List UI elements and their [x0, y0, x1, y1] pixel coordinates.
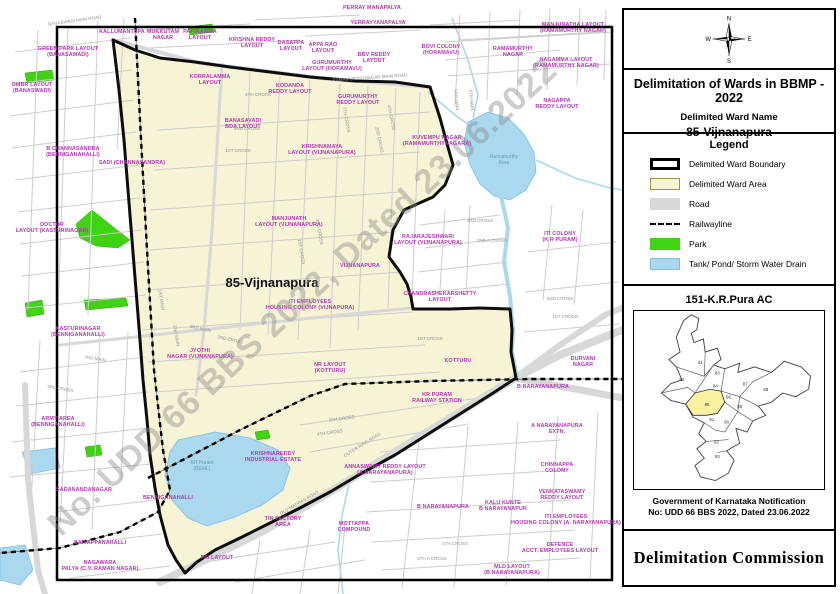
legend-item: Tank/ Pond/ Storm Water Drain	[650, 257, 834, 271]
place-label: NR LAYOUT(KOTTURU)	[314, 362, 346, 374]
legend-item: Delimited Ward Area	[650, 177, 834, 191]
legend-swatch-road	[650, 198, 680, 210]
place-label: B CHANNASANDRA(BENNIGANAHALLI)	[46, 146, 100, 158]
place-label: SADI (CHANNASANDRA)	[99, 160, 165, 166]
place-label: OMBR LAYOUT(BANASWADI)	[12, 82, 53, 94]
title-box: Delimitation of Wards in BBMP - 2022 Del…	[624, 70, 834, 134]
legend-box: Legend Delimited Ward BoundaryDelimited …	[624, 134, 834, 286]
compass-box: N S W E	[624, 10, 834, 70]
street-label: 2ND A CROSS	[477, 238, 507, 243]
legend-title: Legend	[624, 139, 834, 151]
compass-e: E	[748, 37, 752, 43]
street-label: 4TH CROSS	[245, 92, 271, 97]
place-label: BAIYAPPANAHALLI	[74, 540, 127, 546]
legend-item: Delimited Ward Boundary	[650, 157, 834, 171]
compass-s: S	[727, 59, 731, 65]
inset-map: 81828384878886858991909293	[634, 311, 823, 488]
place-label: KRISHNAREDDYINDUSTRIAL ESTATE	[245, 451, 302, 463]
place-label: KASTURINAGAR(BENNIGANAHALLI)	[51, 326, 105, 338]
legend-item-label: Delimited Ward Area	[689, 179, 767, 189]
street-label: 5TH A CROSS	[417, 556, 447, 561]
inset-ward-number: 81	[698, 360, 703, 365]
place-label: APPA RAOLAYOUT	[309, 42, 338, 54]
legend-items: Delimited Ward BoundaryDelimited Ward Ar…	[624, 157, 834, 271]
info-panel: N S W E Delimitation of Wards in BBMP - …	[622, 8, 836, 587]
inset-ward-number: 87	[743, 382, 748, 387]
legend-item: Road	[650, 197, 834, 211]
place-label: PAI LAYOUT	[201, 555, 234, 561]
inset-ward-number: 89	[737, 404, 742, 409]
place-label: GURUMURTHYREDDY LAYOUT	[336, 94, 380, 106]
notification-line2: No: UDD 66 BBS 2022, Dated 23.06.2022	[648, 507, 810, 518]
inset-ward-number: 83	[715, 370, 720, 375]
street-label: 2ND CROSS	[234, 126, 260, 131]
place-label: KALU KUNTEB NARAYANAPUR	[479, 500, 527, 512]
ward-map-canvas: KALLUMANTAPAMUKKUTAMNAGARPAPIRAMMALAYOUT…	[0, 0, 622, 594]
place-label: MANJUNATHA LAYOUT(RAMAMURTHY NAGAR)	[540, 22, 606, 34]
inset-ward-number: 92	[714, 439, 719, 444]
ward-name-label: Delimited Ward Name	[624, 112, 834, 123]
place-label: RAJARAJESHWARILAYOUT (VIJNANAPURA)	[394, 234, 462, 246]
place-label: VENKATASWAMYREDDY LAYOUT	[539, 489, 586, 501]
inset-ward-number: 82	[679, 377, 684, 382]
place-label: ITI COLONY(K R PURAM)	[542, 231, 577, 243]
compass-n: N	[727, 16, 731, 22]
street-label: 1ST CROSS	[552, 314, 577, 319]
inset-map-frame: 81828384878886858991909293	[633, 310, 825, 490]
water-label: KR Puram(BEML)	[190, 460, 213, 472]
inset-ward-number: 91	[709, 417, 714, 422]
commission-title: Delimitation Commission	[634, 548, 825, 568]
park	[85, 445, 102, 457]
street-label: 3RD CROSS	[467, 218, 493, 223]
legend-item-label: Railwayline	[689, 219, 732, 229]
inset-ward-number: 93	[715, 454, 720, 459]
street-label: 1ST CROSS	[225, 148, 250, 153]
inset-box: 151-K.R.Pura AC 818283848788868589919092…	[624, 286, 834, 531]
legend-swatch-boundary	[650, 158, 680, 170]
inset-ward-number: 85	[705, 402, 710, 407]
street-label: 1ST CROSS	[417, 336, 442, 341]
place-label: BENNIGANAHALLI	[143, 495, 193, 501]
place-label: PERRAY MANAPALYA	[343, 5, 401, 11]
legend-swatch-railway	[650, 223, 680, 225]
inset-ward-number: 86	[726, 395, 731, 400]
place-label: KALLUMANTAPA	[99, 29, 145, 35]
street-label: 4TH CROSS	[442, 541, 468, 546]
legend-swatch-area	[650, 178, 680, 190]
place-label: DURVANINAGAR	[571, 356, 596, 368]
legend-swatch-tank	[650, 258, 680, 270]
place-label: B NARAYANAPURA	[517, 384, 569, 390]
inset-ward-number: 88	[763, 387, 768, 392]
inset-ward-number: 90	[724, 420, 729, 425]
legend-item-label: Delimited Ward Boundary	[689, 159, 786, 169]
place-label: MOTTAPPACOMPOUND	[338, 521, 371, 533]
place-label: B NARAYANAPURA	[417, 504, 469, 510]
street-label: 2ND CROSS	[547, 296, 573, 301]
legend-swatch-park	[650, 238, 680, 250]
ac-outline	[661, 315, 810, 481]
inset-ward-number: 84	[713, 383, 718, 388]
place-label: DASAPPALAYOUT	[278, 40, 305, 52]
place-label: KOTTURU	[444, 358, 471, 364]
legend-item-label: Road	[689, 199, 709, 209]
compass-w: W	[705, 37, 711, 43]
inset-title: 151-K.R.Pura AC	[685, 294, 772, 306]
compass-rose-icon: N S W E	[693, 13, 765, 65]
place-label: CHINNAPPACOLONY	[541, 462, 574, 474]
ward-map: KALLUMANTAPAMUKKUTAMNAGARPAPIRAMMALAYOUT…	[0, 0, 622, 594]
legend-item: Railwayline	[650, 217, 834, 231]
legend-item-label: Tank/ Pond/ Storm Water Drain	[689, 259, 806, 269]
notification: Government of Karnataka Notification No:…	[648, 496, 810, 518]
park	[255, 430, 270, 440]
legend-item-label: Park	[689, 239, 706, 249]
map-title: Delimitation of Wards in BBMP - 2022	[624, 77, 834, 105]
legend-item: Park	[650, 237, 834, 251]
commission-box: Delimitation Commission	[624, 531, 834, 585]
place-label: YERRAYYANAPALYA	[350, 20, 405, 26]
place-label: BOVI COLONY(HORAMAVU)	[422, 44, 461, 56]
notification-line1: Government of Karnataka Notification	[648, 496, 810, 507]
